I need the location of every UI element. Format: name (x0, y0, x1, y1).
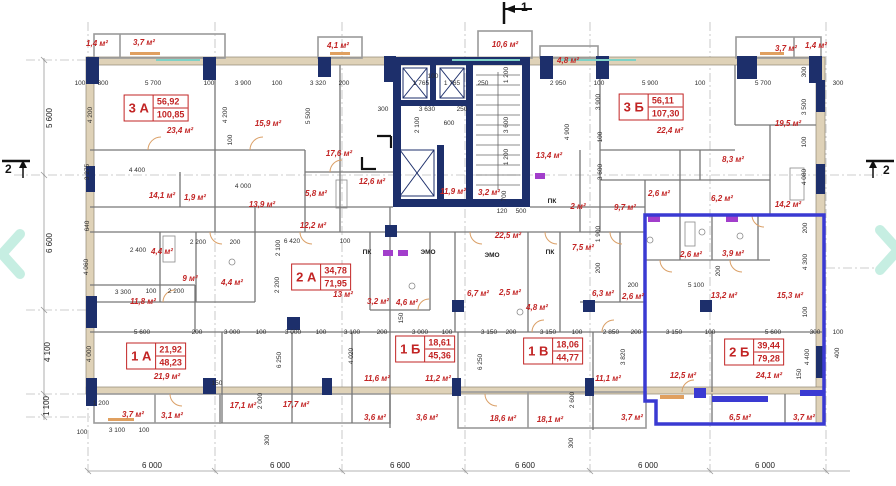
room-area-label: 7,5 м² (572, 244, 594, 252)
room-area-label: 3,7 м² (793, 414, 815, 422)
carousel-next-button[interactable] (872, 224, 896, 279)
dimension-label: 3 600 (598, 164, 605, 180)
dimension-label: 300 (98, 81, 109, 88)
axis-dimension-label: 6 000 (142, 462, 162, 470)
dimension-label: 200 (506, 330, 517, 337)
dimension-label: 4 900 (565, 124, 572, 140)
apartment-number: 2 Б (725, 340, 754, 365)
dimension-label: 300 (569, 438, 576, 449)
dimension-label: 300 (802, 67, 809, 78)
room-area-label: 12,6 м² (359, 178, 385, 186)
dimension-label: 2 600 (570, 392, 577, 408)
dimension-label: 3 100 (344, 330, 360, 337)
chevron-left-icon (0, 228, 28, 280)
room-area-label: 17,7 м² (283, 401, 309, 409)
room-area-label: 5,8 м² (305, 190, 327, 198)
apartment-number: 3 А (125, 96, 154, 121)
room-area-label: 3,7 м² (621, 414, 643, 422)
room-area-label: 4,6 м² (396, 299, 418, 307)
apartment-number: 3 Б (620, 95, 649, 120)
room-area-label: 3,7 м² (775, 45, 797, 53)
utility-label: ЭМО (420, 250, 435, 257)
apartment-label-1В: 1 В18,0644,77 (523, 338, 583, 365)
dimension-label: 150 (399, 313, 406, 324)
dimension-label: 2 950 (550, 81, 566, 88)
dimension-label: 4 000 (87, 346, 94, 362)
dimension-label: 300 (833, 81, 844, 88)
carousel-prev-button[interactable] (0, 228, 28, 283)
dimension-label: 4 400 (129, 168, 145, 175)
dimension-label: 150 (797, 369, 804, 380)
section-marker-2-right: 2 (883, 163, 890, 177)
dimension-label: 5 500 (306, 108, 313, 124)
dimension-label: 2 100 (415, 117, 422, 133)
axis-dimension-label: 6 600 (515, 462, 535, 470)
axis-dimension-label: 6 000 (638, 462, 658, 470)
dimension-label: 2 200 (190, 240, 206, 247)
dimension-label: 200 (631, 330, 642, 337)
dimension-label: 2 200 (168, 289, 184, 296)
apartment-label-1А: 1 А21,9248,23 (126, 343, 186, 370)
dimension-label: 120 (497, 209, 508, 216)
apartment-areas: 18,6145,36 (425, 337, 454, 362)
apartment-areas: 18,0644,77 (553, 339, 582, 364)
dimension-label: 100 (316, 330, 327, 337)
dimension-label: 200 (716, 266, 723, 277)
room-area-label: 6,3 м² (592, 290, 614, 298)
room-area-label: 3,6 м² (364, 414, 386, 422)
dimension-label: 5 600 (765, 330, 781, 337)
room-area-label: 9,7 м² (614, 204, 636, 212)
room-area-label: 3,7 м² (133, 39, 155, 47)
apartment-areas: 21,9248,23 (156, 344, 185, 369)
room-area-label: 12,5 м² (670, 372, 696, 380)
section-marker-1: 1 (521, 0, 528, 14)
dimension-label: 3 100 (109, 428, 125, 435)
dimension-label: 2 000 (258, 393, 265, 409)
room-area-label: 22,4 м² (657, 127, 683, 135)
dimension-label: 100 (340, 239, 351, 246)
dimension-label: 1 200 (504, 67, 511, 83)
dimension-label: 3 900 (596, 94, 603, 110)
dimension-label: 2 100 (276, 240, 283, 256)
apartment-label-3А: 3 А56,92100,85 (124, 95, 189, 122)
apartment-number: 2 А (292, 265, 321, 290)
room-area-label: 11,1 м² (595, 375, 621, 383)
room-area-label: 4,4 м² (151, 248, 173, 256)
dimension-label: 5 600 (134, 330, 150, 337)
dimension-label: 100 (428, 74, 439, 81)
dimension-label: 3 820 (621, 349, 628, 365)
axis-dimension-label: 4 100 (44, 342, 52, 362)
room-area-label: 13,4 м² (536, 152, 562, 160)
dimension-label: 200 (803, 223, 810, 234)
apartment-number: 1 Б (396, 337, 425, 362)
utility-label: ПК (546, 250, 555, 257)
room-area-label: 11,2 м² (425, 375, 451, 383)
dimension-label: 100 (802, 137, 809, 148)
dimension-label: 3 900 (235, 81, 251, 88)
section-marker-2-left: 2 (5, 162, 12, 176)
axis-dimension-label: 6 600 (46, 233, 54, 253)
dimension-label: 3 320 (310, 81, 326, 88)
room-area-label: 18,1 м² (537, 416, 563, 424)
room-area-label: 17,1 м² (230, 402, 256, 410)
dimension-label: 200 (596, 263, 603, 274)
dimension-label: 300 (810, 330, 821, 337)
dimension-label: 2 850 (603, 330, 619, 337)
room-area-label: 13,9 м² (249, 201, 275, 209)
room-area-label: 1,4 м² (805, 42, 827, 50)
utility-label: ЭМО (484, 253, 499, 260)
dimension-label: 100 (75, 81, 86, 88)
room-area-label: 18,6 м² (490, 415, 516, 423)
dimension-label: 200 (192, 330, 203, 337)
room-area-label: 2 м² (570, 203, 585, 211)
apartment-number: 1 А (127, 344, 156, 369)
dimension-label: 100 (705, 330, 716, 337)
dimension-label: 2 400 (130, 248, 146, 255)
dimension-label: 400 (835, 348, 842, 359)
dimension-label: 100 (228, 135, 235, 146)
dimension-label: 4 200 (88, 107, 95, 123)
dimension-label: 200 (377, 330, 388, 337)
dimension-label: 1 765 (413, 81, 429, 88)
dimension-label: 100 (204, 81, 215, 88)
dimension-label: 4 400 (805, 349, 812, 365)
room-area-label: 23,4 м² (167, 127, 193, 135)
dimension-label: 1 200 (504, 149, 511, 165)
room-area-label: 2,6 м² (680, 251, 702, 259)
room-area-label: 3,6 м² (416, 414, 438, 422)
dimension-label: 3 000 (285, 330, 301, 337)
axis-dimension-label: 1 100 (43, 396, 51, 416)
room-area-label: 10,6 м² (492, 41, 518, 49)
apartment-areas: 56,92100,85 (154, 96, 188, 121)
room-area-label: 4,4 м² (221, 279, 243, 287)
room-area-label: 15,3 м² (777, 292, 803, 300)
dimension-label: 3 600 (504, 117, 511, 133)
dimension-label: 100 (572, 330, 583, 337)
dimension-label: 100 (803, 307, 810, 318)
room-area-label: 9 м² (182, 275, 197, 283)
dimension-label: 1 765 (444, 81, 460, 88)
dimension-label: 100 (598, 132, 605, 143)
dimension-label: 3 275 (85, 164, 92, 180)
room-area-label: 3,1 м² (161, 412, 183, 420)
dimension-label: 6 250 (478, 354, 485, 370)
dimension-label: 100 (139, 428, 150, 435)
dimension-label: 200 (339, 81, 350, 88)
apartment-label-2А: 2 А34,7871,95 (291, 264, 351, 291)
room-area-label: 11,8 м² (130, 298, 156, 306)
dimension-label: 4 060 (84, 259, 91, 275)
room-area-label: 4,8 м² (526, 304, 548, 312)
room-area-label: 14,1 м² (149, 192, 175, 200)
room-area-label: 4,8 м² (557, 57, 579, 65)
apartment-label-3Б: 3 Б56,11107,30 (619, 94, 684, 121)
dimension-label: 1 200 (93, 401, 109, 408)
room-area-label: 1,9 м² (184, 194, 206, 202)
axis-dimension-label: 6 000 (270, 462, 290, 470)
room-area-label: 4,1 м² (327, 42, 349, 50)
dimension-label: 5 100 (688, 283, 704, 290)
dimension-label: 3 000 (224, 330, 240, 337)
dimension-label: 100 (594, 81, 605, 88)
room-area-label: 11,9 м² (440, 188, 466, 196)
dimension-label: 4 080 (802, 169, 809, 185)
dimension-label: 100 (146, 289, 157, 296)
room-area-label: 3,9 м² (722, 250, 744, 258)
dimension-label: 100 (256, 330, 267, 337)
dimension-label: 5 700 (755, 81, 771, 88)
dimension-label: 250 (478, 81, 489, 88)
dimension-label: 1 900 (596, 226, 603, 242)
room-area-label: 19,5 м² (775, 120, 801, 128)
floor-plan-viewer: 1,4 м²3,7 м²4,1 м²10,6 м²4,8 м²3,7 м²1,4… (0, 0, 896, 486)
dimension-label: 4 200 (223, 107, 230, 123)
room-area-label: 1,4 м² (86, 40, 108, 48)
dimension-label: 6 420 (284, 239, 300, 246)
dimension-label: 100 (695, 81, 706, 88)
dimension-label: 4 020 (349, 348, 356, 364)
dimension-label: 4 000 (235, 184, 251, 191)
room-area-label: 3,2 м² (367, 298, 389, 306)
dimension-label: 250 (457, 107, 468, 114)
room-area-label: 3,7 м² (122, 411, 144, 419)
axis-dimension-label: 6 000 (755, 462, 775, 470)
utility-label: ПК (363, 250, 372, 257)
room-area-label: 2,6 м² (622, 293, 644, 301)
dimension-label: 200 (230, 240, 241, 247)
dimension-label: 100 (77, 430, 88, 437)
dimension-label: 300 (265, 435, 272, 446)
dimension-label: 5 900 (642, 81, 658, 88)
room-area-label: 13 м² (333, 291, 353, 299)
apartment-label-2Б: 2 Б39,4479,28 (724, 339, 784, 366)
dimension-label: 6 250 (277, 352, 284, 368)
dimension-label: 3 150 (540, 330, 556, 337)
dimension-label: 4 300 (803, 254, 810, 270)
dimension-label: 200 (628, 283, 639, 290)
chevron-right-icon (872, 224, 896, 276)
room-area-label: 21,9 м² (154, 373, 180, 381)
room-area-label: 3,2 м² (478, 189, 500, 197)
dimension-label: 150 (212, 381, 223, 388)
dimension-label: 100 (833, 330, 844, 337)
apartment-areas: 56,11107,30 (649, 95, 683, 120)
dimension-label: 500 (516, 209, 527, 216)
room-area-label: 2,5 м² (499, 289, 521, 297)
apartment-areas: 34,7871,95 (321, 265, 350, 290)
plan-labels-layer: 1,4 м²3,7 м²4,1 м²10,6 м²4,8 м²3,7 м²1,4… (0, 0, 896, 486)
dimension-label: 100 (272, 81, 283, 88)
apartment-number: 1 В (524, 339, 553, 364)
dimension-label: 300 (378, 107, 389, 114)
room-area-label: 11,6 м² (364, 375, 390, 383)
room-area-label: 8,3 м² (722, 156, 744, 164)
dimension-label: 640 (85, 221, 92, 232)
dimension-label: 700 (502, 191, 509, 202)
room-area-label: 22,5 м² (495, 232, 521, 240)
room-area-label: 6,7 м² (467, 290, 489, 298)
axis-dimension-label: 5 600 (46, 108, 54, 128)
room-area-label: 17,6 м² (326, 150, 352, 158)
room-area-label: 12,2 м² (300, 222, 326, 230)
room-area-label: 2,6 м² (648, 190, 670, 198)
utility-label: ПК (548, 199, 557, 206)
dimension-label: 5 700 (145, 81, 161, 88)
room-area-label: 24,1 м² (756, 372, 782, 380)
apartment-areas: 39,4479,28 (754, 340, 783, 365)
dimension-label: 3 300 (115, 290, 131, 297)
room-area-label: 6,2 м² (711, 195, 733, 203)
dimension-label: 2 200 (275, 277, 282, 293)
room-area-label: 15,9 м² (255, 120, 281, 128)
room-area-label: 6,5 м² (729, 414, 751, 422)
dimension-label: 3 150 (481, 330, 497, 337)
dimension-label: 3 500 (802, 99, 809, 115)
dimension-label: 600 (444, 121, 455, 128)
dimension-label: 3 150 (666, 330, 682, 337)
apartment-label-1Б: 1 Б18,6145,36 (395, 336, 455, 363)
dimension-label: 3 630 (419, 107, 435, 114)
axis-dimension-label: 6 600 (390, 462, 410, 470)
room-area-label: 13,2 м² (711, 292, 737, 300)
room-area-label: 14,2 м² (775, 201, 801, 209)
